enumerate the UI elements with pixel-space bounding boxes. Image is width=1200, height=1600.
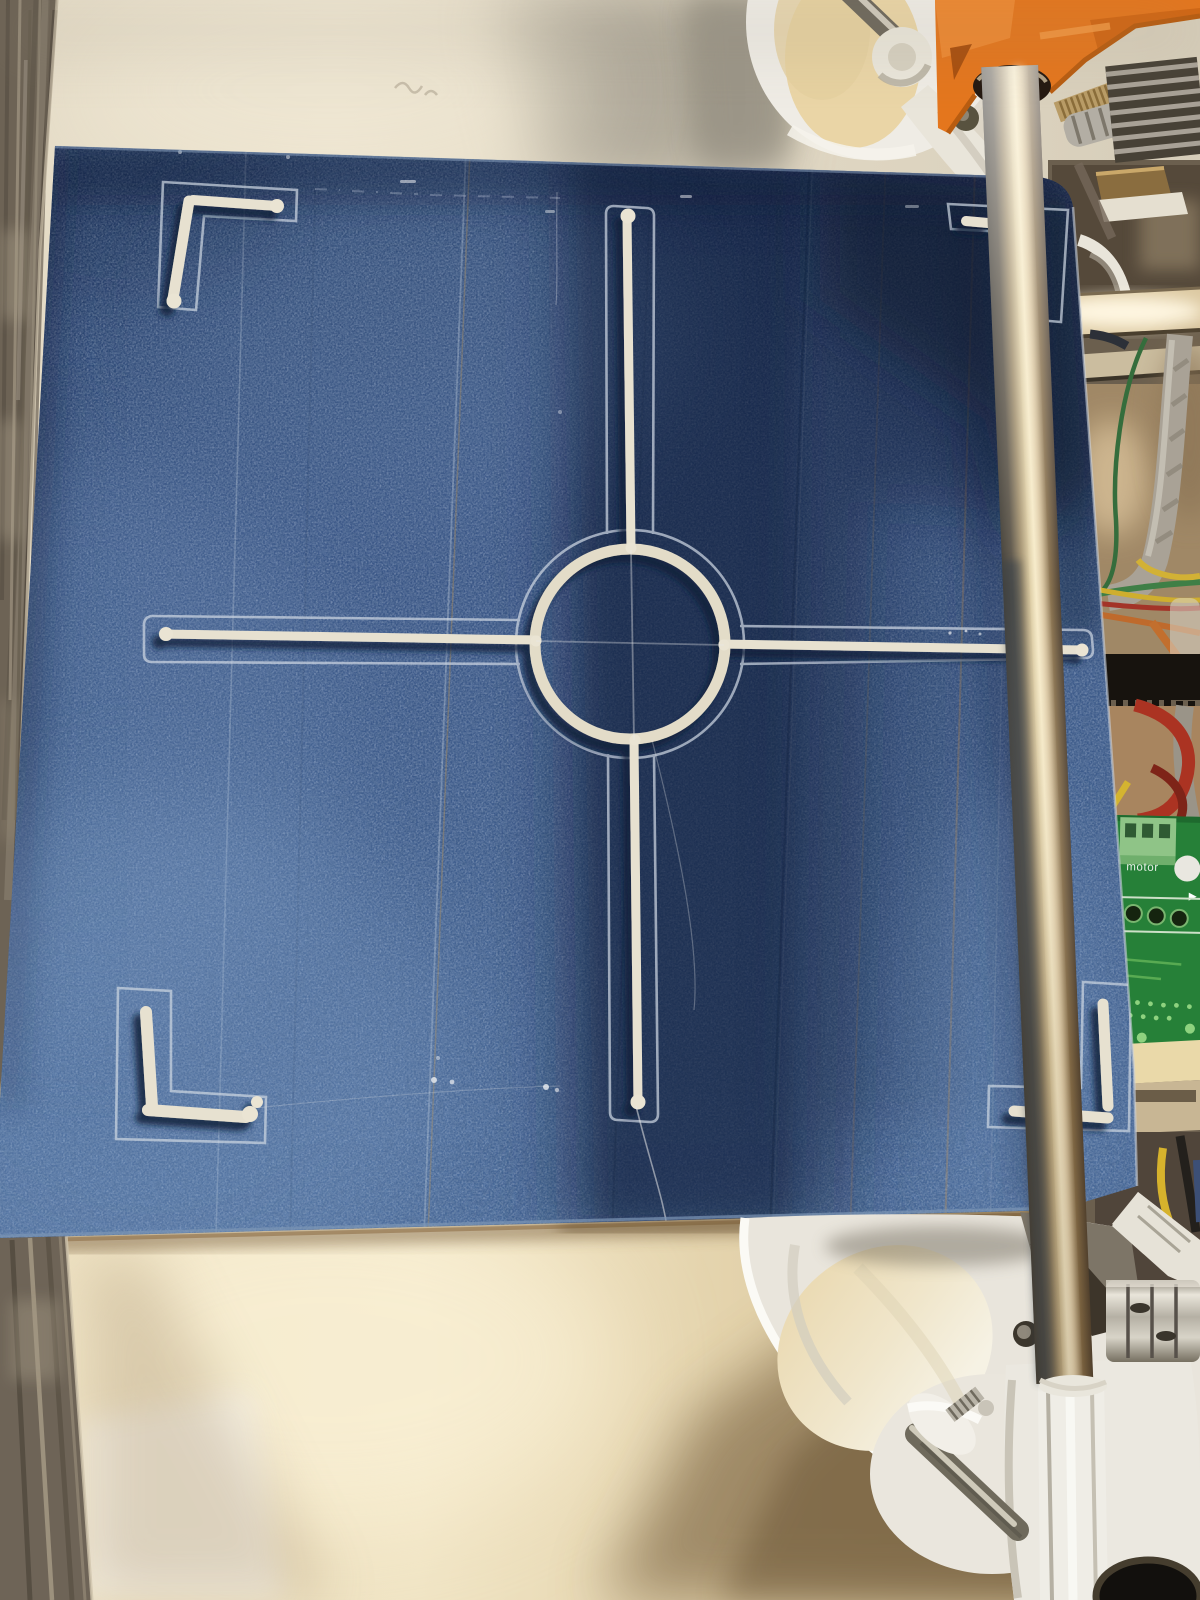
svg-text:motor: motor [1126,861,1159,874]
